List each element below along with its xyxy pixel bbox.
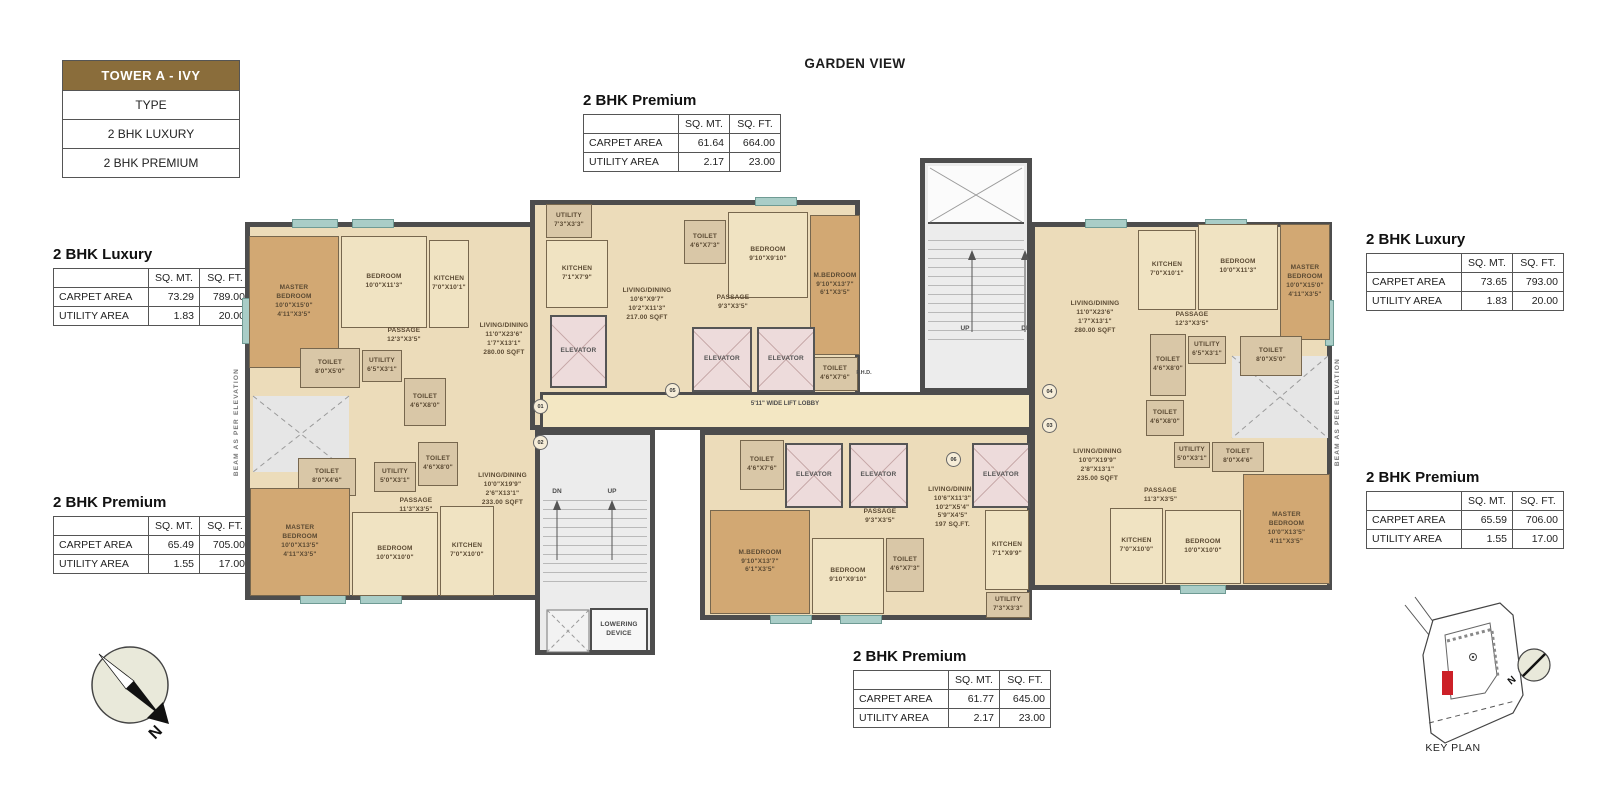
room-bedroom-bottom-center: BEDROOM9'10"X9'10" [812,538,884,614]
room-toilet-bottom-center-2: TOILET4'6"X7'3" [886,538,924,592]
room-toilet-right-1: TOILET4'6"X8'0" [1150,334,1186,396]
room-elevator-1: ELEVATOR [550,315,607,388]
room-kitchen-left: KITCHEN7'0"X10'1" [429,240,469,328]
floor-plan: MASTERBEDROOM10'0"X15'0"4'11"X3'5"BEDROO… [0,0,1601,809]
room-toilet-left-2: TOILET4'6"X8'0" [404,378,446,426]
plan-annotation: F.H.D. [848,370,880,376]
room-kitchen-top-center: KITCHEN7'1"X7'9" [546,240,608,308]
room-bedroom-right: BEDROOM10'0"X11'3" [1198,224,1278,310]
room-passage-right-lower: PASSAGE11'3"X3'5" [1118,487,1203,505]
room-utility-bottom-center: UTILITY7'3"X3'3" [986,592,1030,618]
room-utility-top-center: UTILITY7'3"X3'3" [546,204,592,238]
room-utility-right: UTILITY6'5"X3'1" [1188,336,1226,364]
room-kitchen-right: KITCHEN7'0"X10'1" [1138,230,1196,310]
beam-note: BEAM AS PER ELEVATION [233,368,240,476]
room-utility-right-lower: UTILITY5'0"X3'1" [1174,442,1210,468]
room-kitchen-bottom-center: KITCHEN7'1"X9'9" [985,510,1029,590]
unit-number-badge: 02 [533,435,548,450]
room-bedroom-top-center: BEDROOM9'10"X9'10" [728,212,808,298]
room-living-dining-right: LIVING/DINING11'0"X23'6"1'7"X13'1"280.00… [1055,258,1135,378]
room-bedroom-left: BEDROOM10'0"X11'3" [341,236,427,328]
room-utility-left: UTILITY6'5"X3'1" [362,350,402,382]
room-master-bedroom-right-lower: MASTERBEDROOM10'0"X13'5"4'11"X3'5" [1243,474,1330,584]
room-elevator-4: ELEVATOR [785,443,843,508]
room-toilet-right-2: TOILET8'0"X5'0" [1240,336,1302,376]
room-master-bedroom-bottom-center: M.BEDROOM9'10"X13'7"6'1"X3'5" [710,510,810,614]
unit-number-badge: 03 [1042,418,1057,433]
unit-number-badge: 05 [665,383,680,398]
beam-note: BEAM AS PER ELEVATION [1334,358,1341,466]
room-bedroom-right-lower: BEDROOM10'0"X10'0" [1165,510,1241,584]
plan-annotation: UP [953,325,977,332]
plan-annotation: 5'11" WIDE LIFT LOBBY [700,401,870,407]
compass-rose: N [85,640,185,750]
room-elevator-2: ELEVATOR [692,327,752,392]
room-living-dining-left-lower: LIVING/DINING10'0"X19'9"2'6"X13'1"233.00… [465,455,540,525]
unit-number-badge: 01 [533,399,548,414]
room-passage-top-center: PASSAGE9'3"X3'5" [694,293,772,313]
key-plan-label: KEY PLAN [1398,742,1508,754]
room-elevator-6: ELEVATOR [972,443,1030,508]
room-master-bedroom-right: MASTERBEDROOM10'0"X15'0"4'11"X3'5" [1280,224,1330,340]
room-elevator-3: ELEVATOR [757,327,815,392]
room-kitchen-right-lower: KITCHEN7'0"X10'0" [1110,508,1163,584]
room-toilet-right-lower-2: TOILET8'0"X4'6" [1212,442,1264,472]
room-lowering-device: LOWERINGDEVICE [590,608,648,652]
room-passage-left: PASSAGE12'3"X3'5" [358,324,450,348]
key-plan-highlight-unit [1442,671,1453,695]
room-living-dining-left: LIVING/DINING11'0"X23'6"1'7"X13'1"280.00… [468,280,540,400]
room-elevator-5: ELEVATOR [849,443,908,508]
key-plan: N [1385,595,1555,745]
plan-annotation: UP [600,488,624,495]
room-toilet-right-lower-1: TOILET4'6"X8'0" [1146,400,1184,436]
compass-north-label: N [146,723,166,743]
room-living-dining-top-center: LIVING/DINING10'6"X9'7"10'2"X11'3"217.00… [612,270,682,340]
plan-annotation: DN [1014,325,1038,332]
room-toilet-bottom-center-1: TOILET4'6"X7'6" [740,440,784,490]
room-master-bedroom-left-lower: MASTERBEDROOM10'0"X13'5"4'11"X3'5" [250,488,350,596]
room-bedroom-left-lower: BEDROOM10'0"X10'0" [352,512,438,596]
room-toilet-top-center-1: TOILET4'6"X7'3" [684,220,726,264]
unit-number-badge: 04 [1042,384,1057,399]
room-toilet-left-1: TOILET8'0"X5'0" [300,348,360,388]
room-utility-left-lower: UTILITY5'0"X3'1" [374,462,416,492]
unit-number-badge: 06 [946,452,961,467]
room-passage-right: PASSAGE12'3"X3'5" [1148,310,1236,330]
room-toilet-left-lower-2: TOILET4'6"X8'0" [418,442,458,486]
plan-annotation: DN [545,488,569,495]
room-master-bedroom-top-center: M.BEDROOM9'10"X13'7"6'1"X3'5" [810,215,860,355]
